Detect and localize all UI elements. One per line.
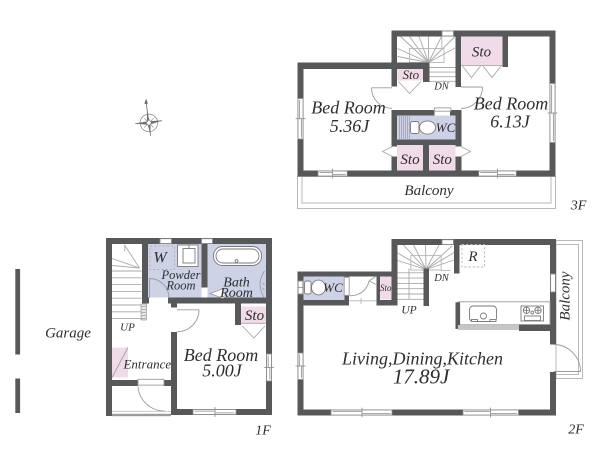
svg-text:UP: UP (120, 322, 135, 334)
svg-text:Balcony: Balcony (404, 183, 453, 199)
svg-text:UP: UP (401, 305, 416, 317)
svg-text:Sto: Sto (472, 45, 492, 61)
svg-text:1F: 1F (255, 424, 271, 439)
svg-text:Entrance: Entrance (122, 356, 171, 371)
svg-text:Bed Room: Bed Room (474, 94, 548, 114)
svg-text:Garage: Garage (45, 326, 91, 342)
svg-text:5.00J: 5.00J (202, 361, 243, 381)
svg-text:Room: Room (165, 279, 195, 293)
svg-text:DN: DN (433, 82, 450, 93)
svg-text:17.89J: 17.89J (393, 365, 451, 389)
svg-text:Sto: Sto (245, 308, 265, 324)
svg-text:Sto: Sto (380, 283, 392, 293)
svg-text:Bed Room: Bed Room (311, 98, 385, 118)
svg-text:R: R (467, 249, 477, 265)
svg-text:5.36J: 5.36J (330, 116, 371, 136)
svg-text:6.13J: 6.13J (490, 112, 531, 132)
svg-text:WC: WC (323, 280, 343, 295)
svg-text:DN: DN (433, 273, 450, 284)
svg-text:3F: 3F (570, 199, 587, 214)
svg-text:2F: 2F (568, 423, 584, 438)
svg-text:Sto: Sto (400, 152, 420, 168)
svg-text:Sto: Sto (402, 67, 419, 82)
svg-text:Balcony: Balcony (558, 271, 574, 320)
svg-text:WC: WC (436, 120, 456, 135)
svg-text:Room: Room (219, 286, 253, 301)
svg-text:W: W (153, 250, 168, 267)
svg-text:Sto: Sto (433, 152, 453, 168)
